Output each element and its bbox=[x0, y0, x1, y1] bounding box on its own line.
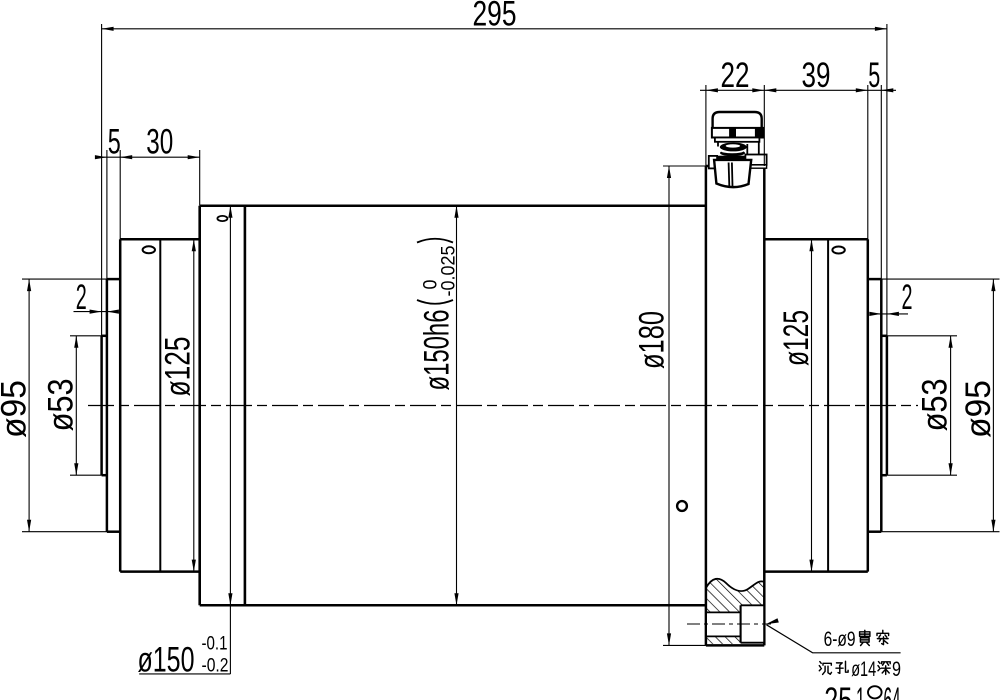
svg-text:ø150h6: ø150h6 bbox=[418, 310, 457, 391]
svg-text:ø14: ø14 bbox=[851, 658, 876, 681]
svg-text:ø53: ø53 bbox=[916, 378, 955, 431]
svg-text:ø125: ø125 bbox=[159, 337, 198, 397]
svg-text:25: 25 bbox=[824, 681, 852, 700]
svg-text:ø53: ø53 bbox=[42, 378, 81, 431]
svg-text:-0.1: -0.1 bbox=[202, 634, 228, 655]
svg-text:ø180: ø180 bbox=[633, 311, 672, 369]
svg-text:ø95: ø95 bbox=[0, 380, 34, 438]
svg-text:295: 295 bbox=[473, 0, 517, 34]
svg-text:5: 5 bbox=[868, 56, 880, 95]
svg-text:9: 9 bbox=[892, 658, 901, 681]
svg-text:22: 22 bbox=[721, 56, 750, 95]
svg-text:ø150: ø150 bbox=[138, 641, 195, 680]
svg-text:-0.025: -0.025 bbox=[439, 246, 460, 297]
svg-text:ø125: ø125 bbox=[777, 310, 816, 366]
svg-text:30: 30 bbox=[146, 123, 173, 162]
svg-text:2: 2 bbox=[76, 278, 87, 317]
svg-text:64: 64 bbox=[884, 681, 901, 700]
svg-text:-0.2: -0.2 bbox=[202, 656, 229, 677]
svg-text:5: 5 bbox=[108, 123, 121, 162]
svg-text:39: 39 bbox=[802, 56, 831, 95]
svg-text:ø95: ø95 bbox=[959, 380, 998, 438]
svg-text:2: 2 bbox=[902, 278, 913, 317]
svg-text:6-ø9: 6-ø9 bbox=[824, 628, 856, 651]
svg-text:1: 1 bbox=[856, 681, 865, 700]
